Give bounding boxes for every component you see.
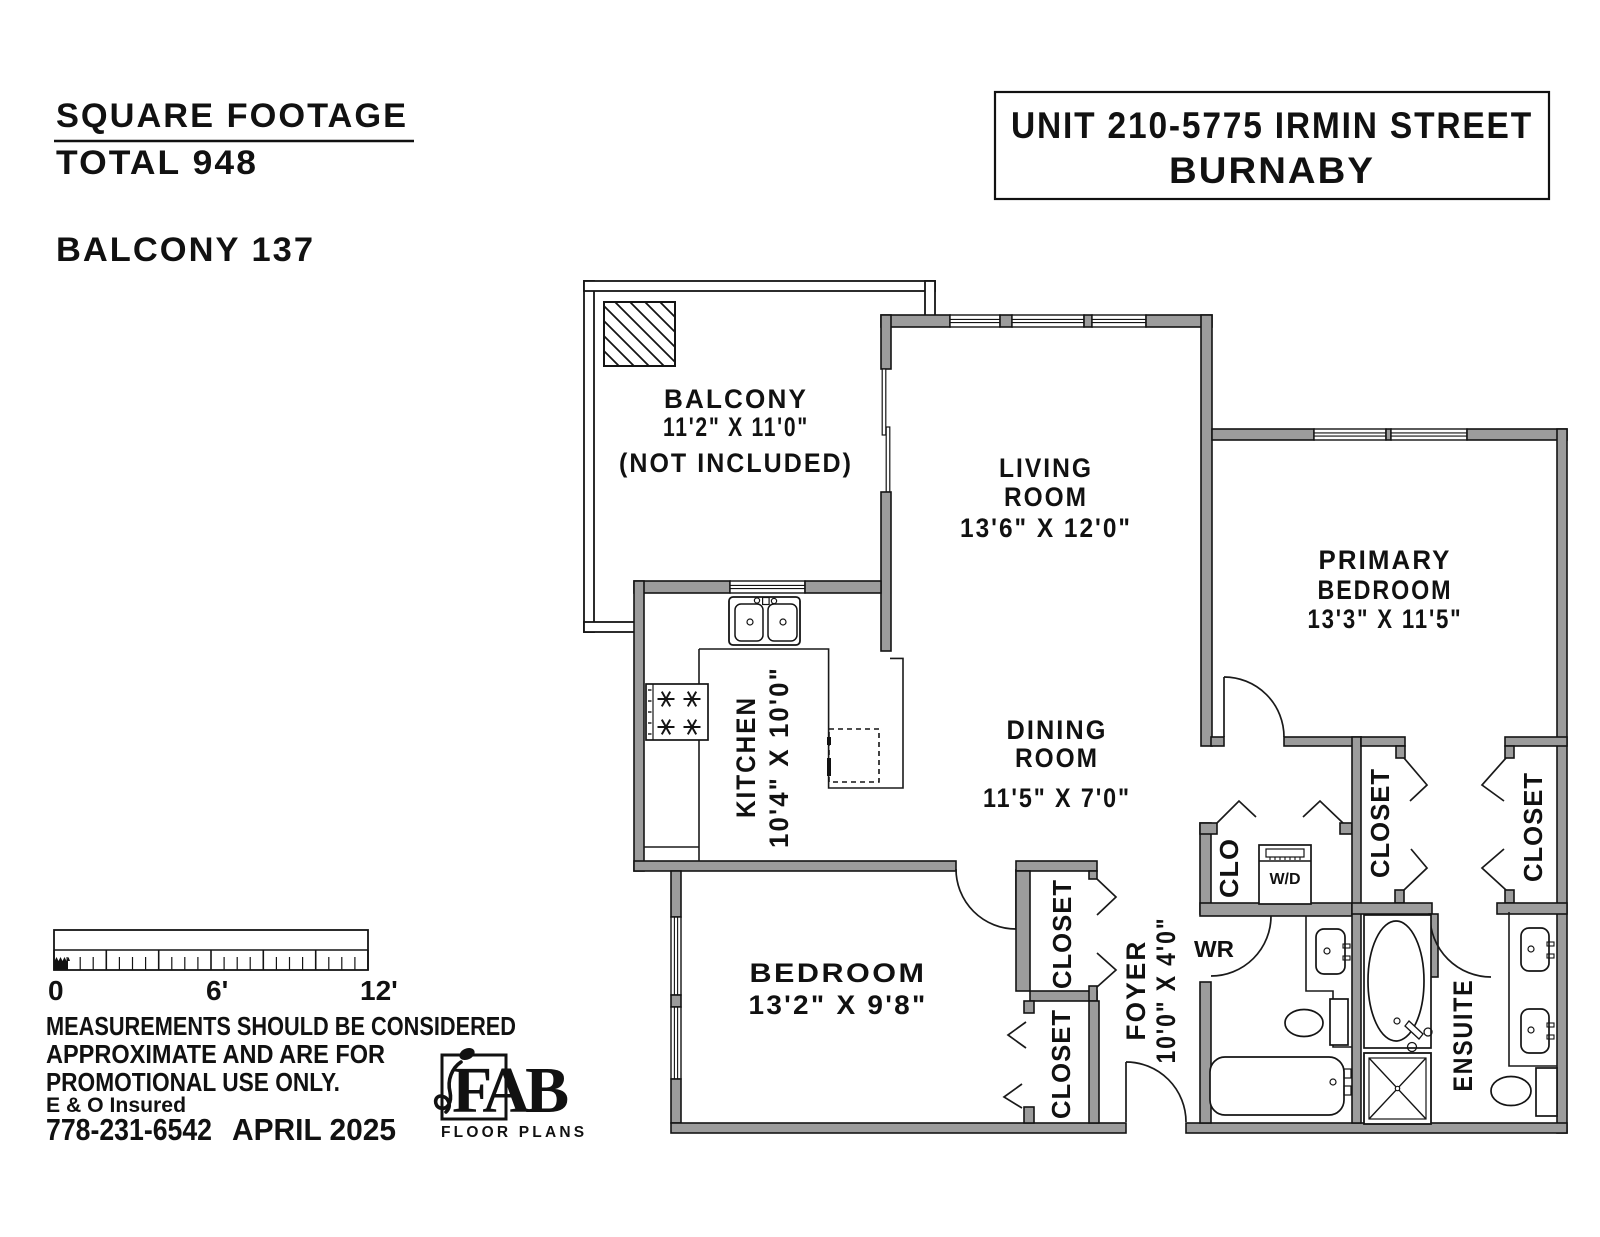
svg-text:13'3" X 11'5": 13'3" X 11'5"	[1308, 604, 1463, 634]
svg-text:CLOSET: CLOSET	[1047, 879, 1077, 989]
svg-text:11'2" X 11'0": 11'2" X 11'0"	[663, 412, 809, 442]
svg-text:0: 0	[48, 975, 64, 1006]
svg-text:BALCONY 137: BALCONY 137	[56, 231, 315, 269]
svg-text:FOYER: FOYER	[1121, 940, 1151, 1041]
svg-text:BALCONY: BALCONY	[664, 384, 808, 414]
svg-text:SQUARE FOOTAGE: SQUARE FOOTAGE	[56, 97, 408, 135]
svg-text:APPROXIMATE AND ARE FOR: APPROXIMATE AND ARE FOR	[46, 1039, 385, 1069]
svg-text:CLO: CLO	[1214, 838, 1244, 898]
svg-text:10'0" X 4'0": 10'0" X 4'0"	[1151, 917, 1181, 1064]
svg-text:CLOSET: CLOSET	[1365, 768, 1395, 878]
svg-text:6': 6'	[206, 975, 228, 1006]
svg-text:LIVING: LIVING	[999, 453, 1093, 483]
svg-text:ROOM: ROOM	[1004, 482, 1088, 512]
svg-text:FLOOR PLANS: FLOOR PLANS	[441, 1124, 587, 1141]
svg-text:BEDROOM: BEDROOM	[1318, 575, 1453, 605]
svg-text:778-231-6542: 778-231-6542	[46, 1112, 212, 1147]
svg-text:10'4" X 10'0": 10'4" X 10'0"	[764, 666, 794, 848]
svg-text:TOTAL 948: TOTAL 948	[56, 144, 258, 182]
svg-text:13'6" X 12'0": 13'6" X 12'0"	[960, 513, 1132, 543]
svg-text:(NOT INCLUDED): (NOT INCLUDED)	[619, 448, 853, 478]
svg-text:ENSUITE: ENSUITE	[1448, 979, 1478, 1092]
svg-text:ROOM: ROOM	[1015, 743, 1099, 773]
svg-text:PRIMARY: PRIMARY	[1319, 545, 1452, 575]
svg-text:APRIL 2025: APRIL 2025	[232, 1112, 396, 1147]
svg-text:MEASUREMENTS SHOULD BE CONSIDE: MEASUREMENTS SHOULD BE CONSIDERED	[46, 1011, 516, 1041]
svg-text:DINING: DINING	[1007, 715, 1108, 745]
svg-text:12': 12'	[360, 975, 398, 1006]
svg-text:WR: WR	[1194, 936, 1234, 962]
svg-text:11'5" X 7'0": 11'5" X 7'0"	[983, 783, 1131, 813]
svg-text:13'2" X 9'8": 13'2" X 9'8"	[749, 990, 928, 1020]
svg-text:BEDROOM: BEDROOM	[750, 958, 927, 988]
svg-text:CLOSET: CLOSET	[1518, 772, 1548, 882]
svg-text:PROMOTIONAL USE ONLY.: PROMOTIONAL USE ONLY.	[46, 1067, 340, 1097]
svg-text:BURNABY: BURNABY	[1169, 150, 1375, 191]
svg-text:W/D: W/D	[1269, 871, 1300, 888]
svg-text:FAB: FAB	[452, 1054, 568, 1127]
svg-text:UNIT 210-5775 IRMIN STREET: UNIT 210-5775 IRMIN STREET	[1011, 105, 1533, 146]
svg-text:KITCHEN: KITCHEN	[731, 696, 761, 818]
svg-text:CLOSET: CLOSET	[1046, 1009, 1076, 1119]
